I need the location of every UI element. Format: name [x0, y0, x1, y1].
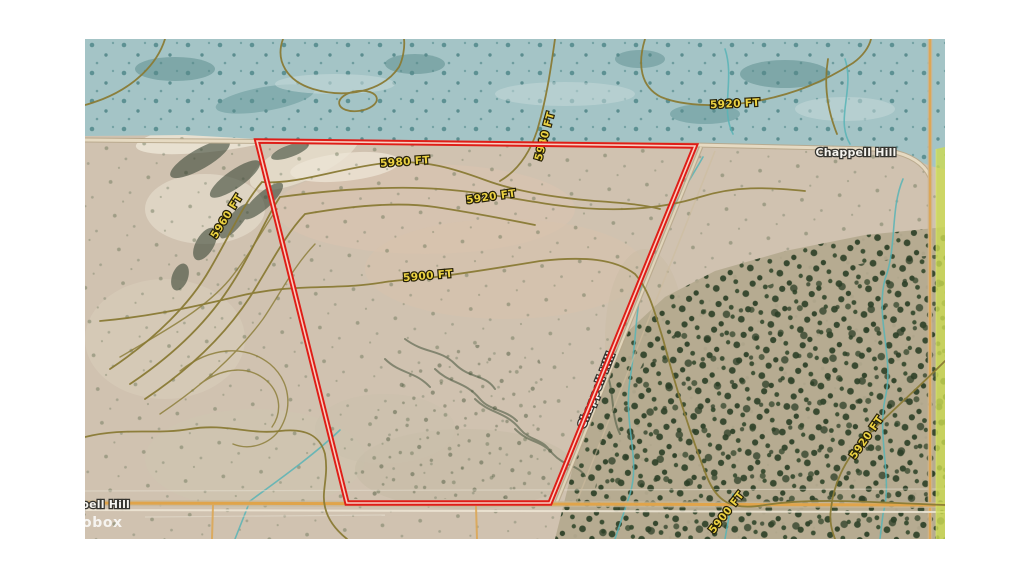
mapbox-watermark[interactable]: obox: [85, 515, 123, 531]
map-canvas[interactable]: 5920 FT 5980 FT 5940 FT 5920 FT 5960 FT …: [85, 39, 945, 539]
satellite-map: 5920 FT 5980 FT 5940 FT 5920 FT 5960 FT …: [85, 39, 945, 539]
screenshot-page: 5920 FT 5980 FT 5940 FT 5920 FT 5960 FT …: [0, 0, 1024, 576]
road-label-chappell-hill-top: Chappell Hill: [815, 146, 896, 159]
road-label-chappell-hill-bottom-clipped: pell Hill: [85, 498, 130, 511]
edge-band: [936, 147, 945, 539]
